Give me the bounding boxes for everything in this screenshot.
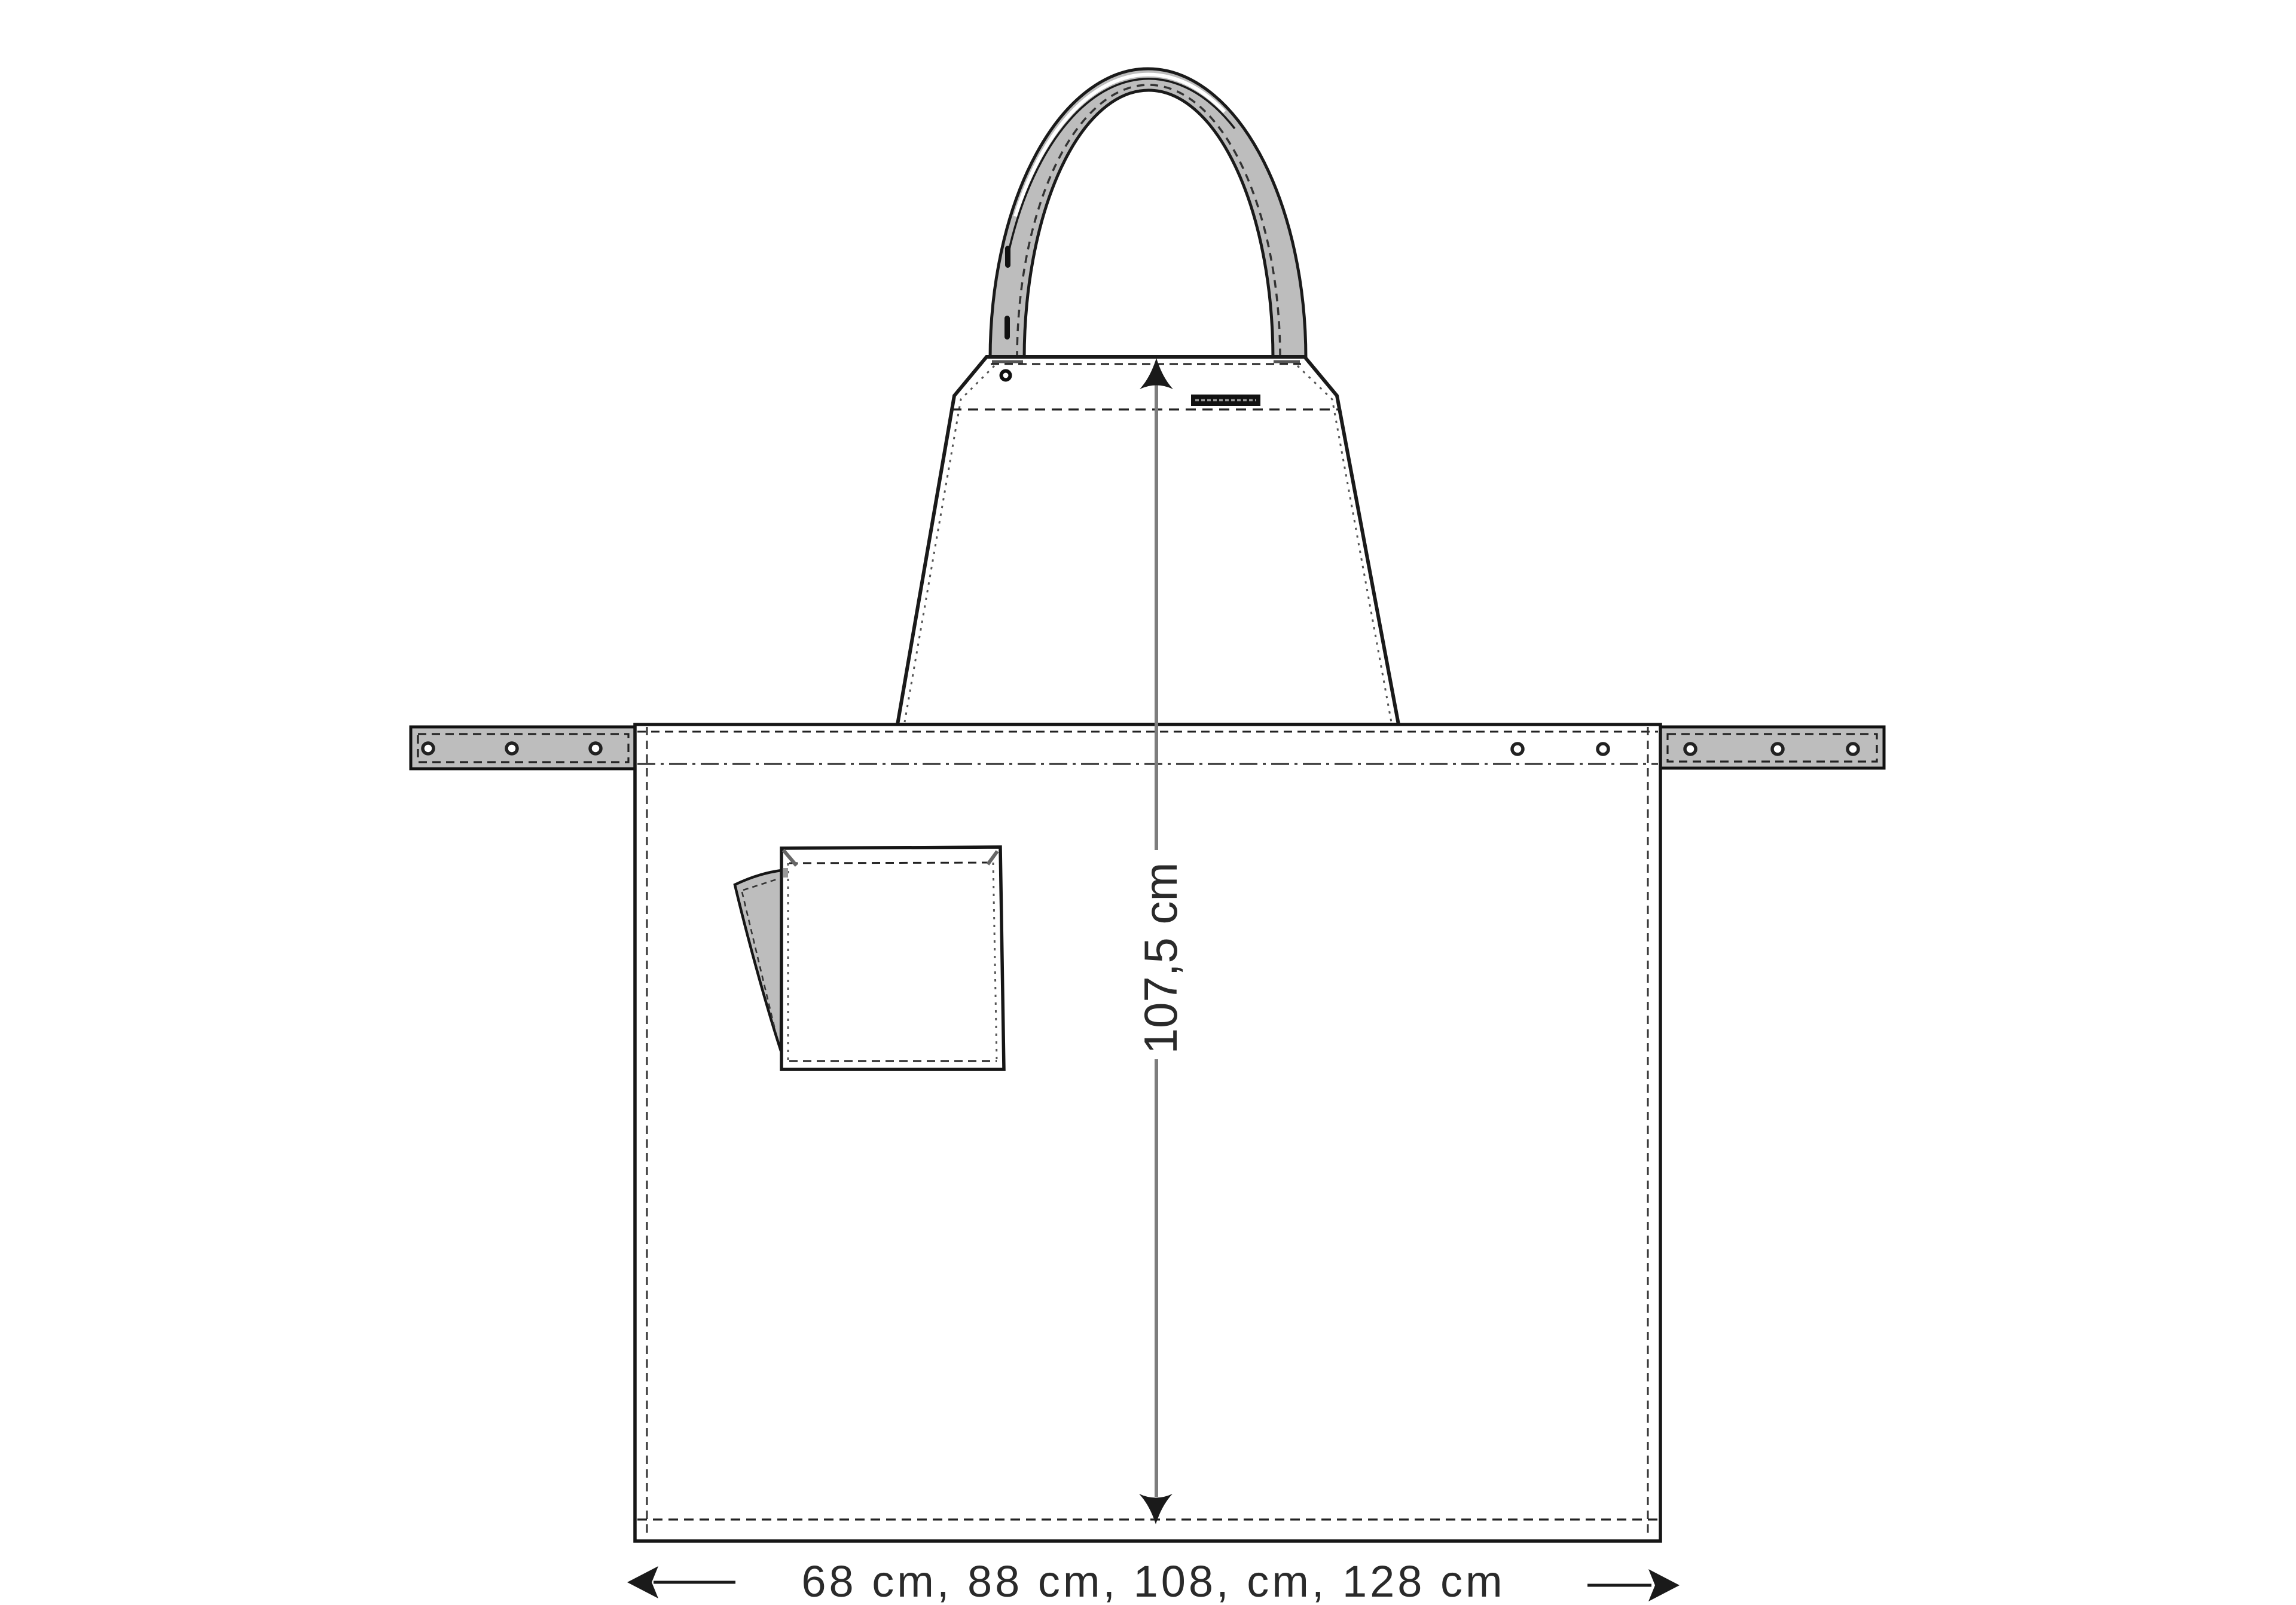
svg-text:68 cm, 88 cm, 108, cm, 128 cm: 68 cm, 88 cm, 108, cm, 128 cm <box>801 1557 1505 1605</box>
svg-text:107,5 cm: 107,5 cm <box>1134 863 1187 1054</box>
